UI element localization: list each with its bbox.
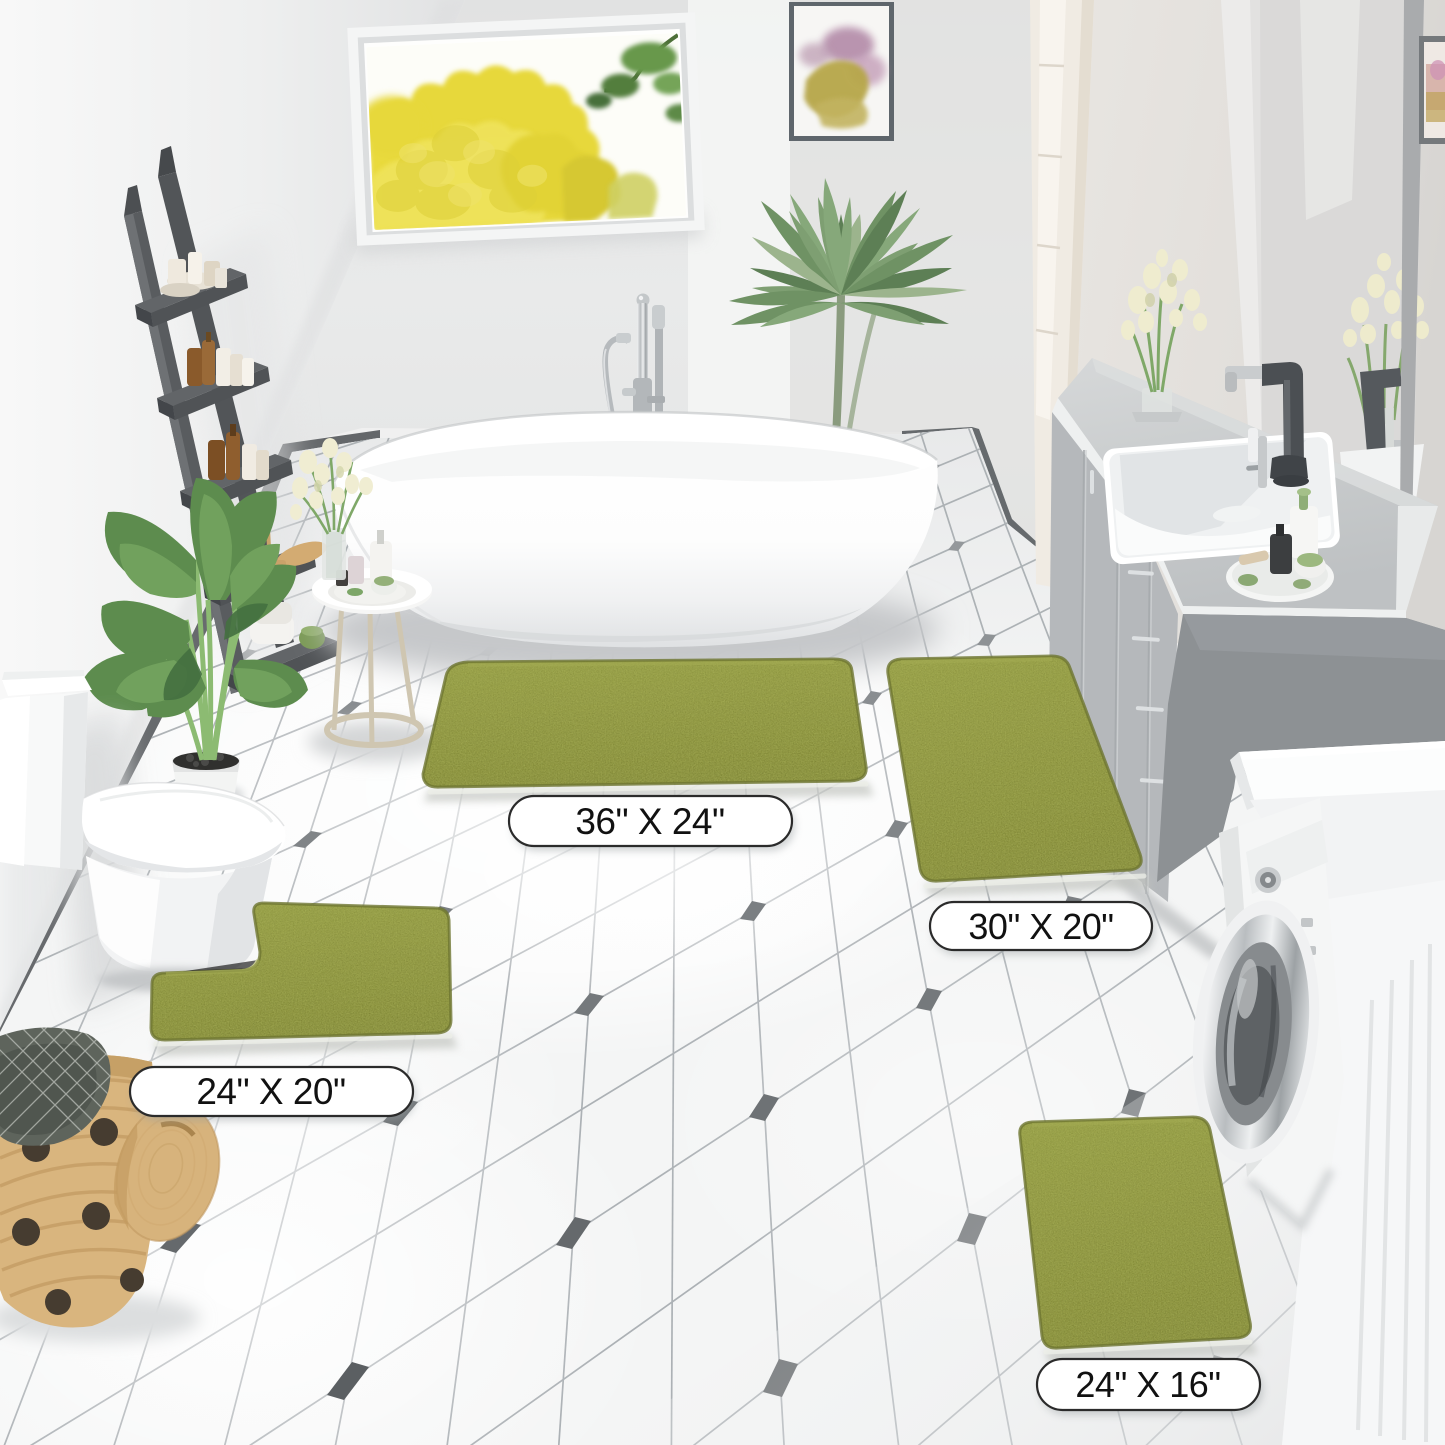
svg-text:30" X 20": 30" X 20" <box>968 906 1113 947</box>
svg-text:24" X 20": 24" X 20" <box>196 1071 345 1112</box>
svg-text:36" X 24": 36" X 24" <box>575 801 724 842</box>
svg-text:24" X 16": 24" X 16" <box>1075 1364 1220 1405</box>
